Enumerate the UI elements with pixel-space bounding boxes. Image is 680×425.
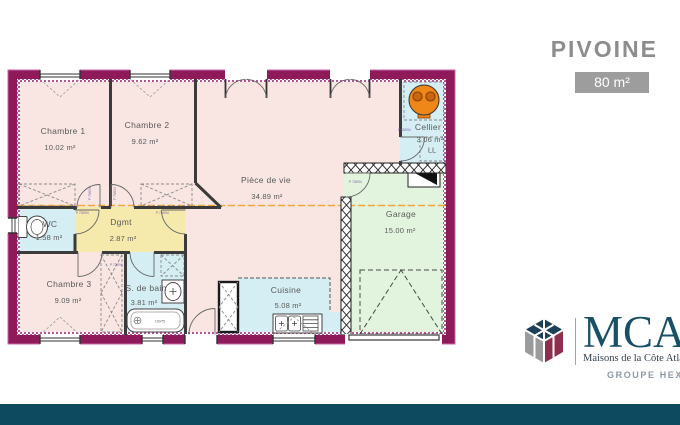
door-ref: P 73/094 <box>113 187 117 200</box>
label-cellier-name: Cellier <box>415 122 441 132</box>
wall-garage-top <box>344 163 446 173</box>
area-badge: 80 m² <box>575 72 649 93</box>
kitchen-drawers-icon <box>303 316 318 331</box>
label-chambre1-name: Chambre 1 <box>41 126 86 136</box>
door-ref: P 73/094 <box>88 187 92 200</box>
bottom-bar <box>0 404 680 425</box>
logo-tagline: Maisons de la Côte Atlantique <box>583 353 680 364</box>
door-ref: P 73/094 <box>110 263 123 267</box>
label-chambre2-area: 9.62 m² <box>132 137 159 146</box>
bathtub-icon: 190/75 <box>127 309 184 332</box>
page-title: PIVOINE <box>0 36 658 63</box>
label-sdb-area: 3.81 m² <box>131 298 158 307</box>
label-wc-name: WC <box>43 219 58 229</box>
label-garage-area: 15.00 m² <box>384 226 415 235</box>
door-ref: P 73/094 <box>156 211 169 215</box>
door-ref: P 73/094 <box>349 180 362 184</box>
label-dgmt-name: Dgmt <box>110 217 132 227</box>
bathtub-size-label: 190/75 <box>155 320 165 324</box>
logo-group: GROUPE HEXAOM <box>607 370 680 380</box>
label-dgmt-area: 2.87 m² <box>110 234 137 243</box>
label-piecedevie-name: Pièce de vie <box>241 175 291 185</box>
washer-label: LL <box>428 146 436 155</box>
page: 190/75 LL <box>0 0 680 425</box>
label-chambre1-area: 10.02 m² <box>44 143 75 152</box>
label-cuisine-area: 5.08 m² <box>275 301 302 310</box>
label-garage-name: Garage <box>386 209 416 219</box>
garage-door <box>345 334 442 345</box>
label-chambre2-name: Chambre 2 <box>125 120 170 130</box>
logo-divider <box>575 318 576 365</box>
logo-brand: MCA <box>583 312 680 352</box>
label-cellier-area: 3.06 m² <box>417 135 444 144</box>
window-sdb <box>142 334 163 345</box>
mca-cube-icon <box>519 316 569 366</box>
door-ref: P 73/094 <box>76 211 89 215</box>
mca-logo: MCA Maisons de la Côte Atlantique GROUPE… <box>519 312 680 380</box>
label-chambre3-name: Chambre 3 <box>47 279 92 289</box>
label-sdb-name: S. de bain <box>125 283 166 293</box>
label-chambre3-area: 9.09 m² <box>55 296 82 305</box>
label-piecedevie-area: 34.89 m² <box>251 192 282 201</box>
window-wc <box>7 218 18 233</box>
entry-stub <box>219 282 238 332</box>
room-garage <box>344 165 446 335</box>
wall-garage-left <box>341 197 351 335</box>
label-wc-area: 1.58 m² <box>36 233 63 242</box>
door-ref-heater: P 83/094 <box>398 128 411 132</box>
label-cuisine-name: Cuisine <box>271 285 301 295</box>
